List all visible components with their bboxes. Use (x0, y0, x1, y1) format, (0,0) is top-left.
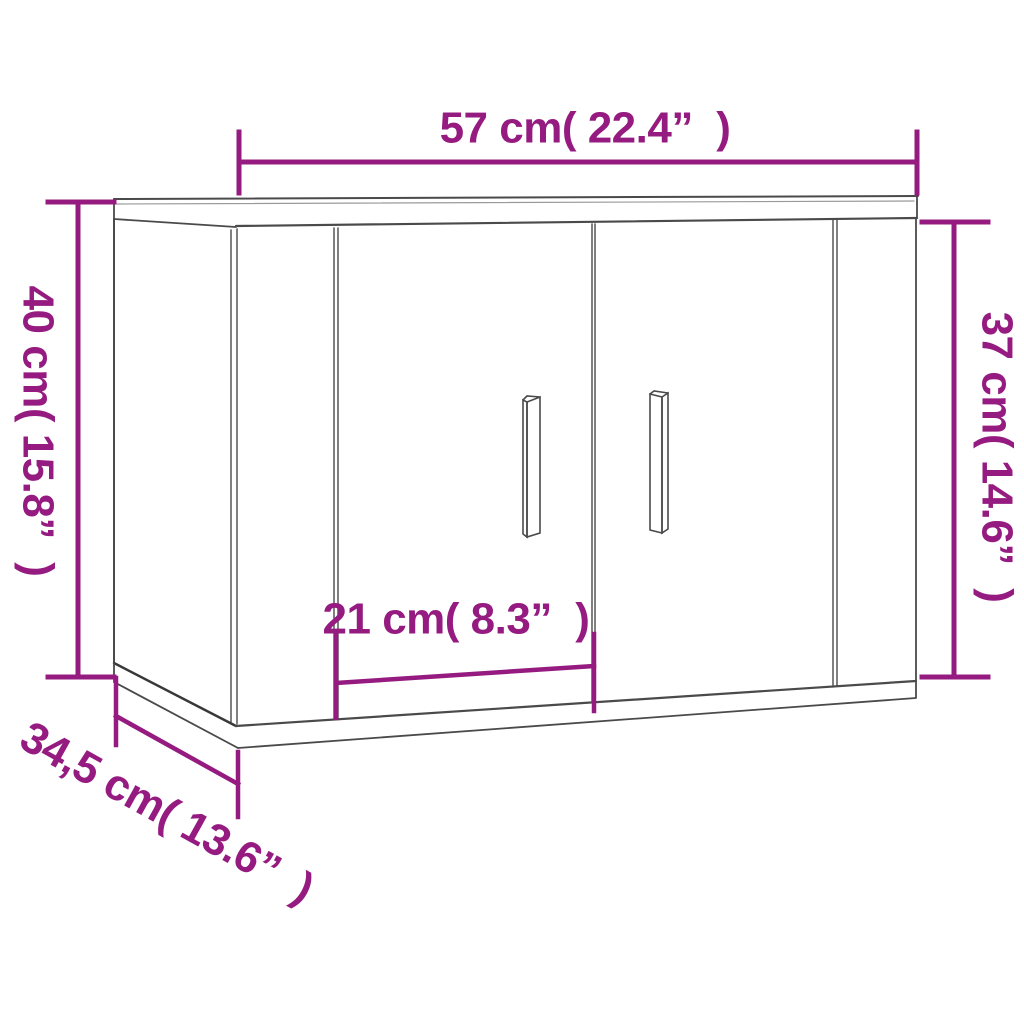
dim-left-height-label: 40 cm( 15.8” ) (12, 286, 63, 577)
dimension-lines (48, 132, 988, 817)
cabinet-front-top-edge (236, 218, 917, 226)
right-handle-top-edge (650, 391, 668, 394)
cabinet (114, 196, 918, 748)
dim-right-height-label: 37 cm( 14.6” ) (971, 312, 1022, 603)
left-side-bottom-edge (114, 663, 236, 726)
product-dimension-image: 57 cm( 22.4” ) 40 cm( 15.8” ) 37 cm( 14.… (0, 0, 1024, 1024)
right-door-handle (650, 391, 668, 533)
cabinet-left-side-top-edge (114, 219, 236, 227)
dim-door-width-label: 21 cm( 8.3” ) (323, 595, 590, 646)
bottom-panel-left-edge (114, 682, 238, 748)
dim-top-width-label: 57 cm( 22.4” ) (440, 104, 731, 155)
right-handle-front-face (650, 394, 662, 533)
left-handle-front-face (527, 397, 540, 537)
cabinet-top-outer-edge (114, 196, 918, 199)
left-door-handle (523, 396, 540, 537)
cabinet-bottom-front-lower-edge (238, 698, 916, 748)
cabinet-top-inner-edge (117, 201, 914, 204)
dim-door-width-line (336, 666, 594, 683)
right-handle-side-face (662, 393, 668, 533)
